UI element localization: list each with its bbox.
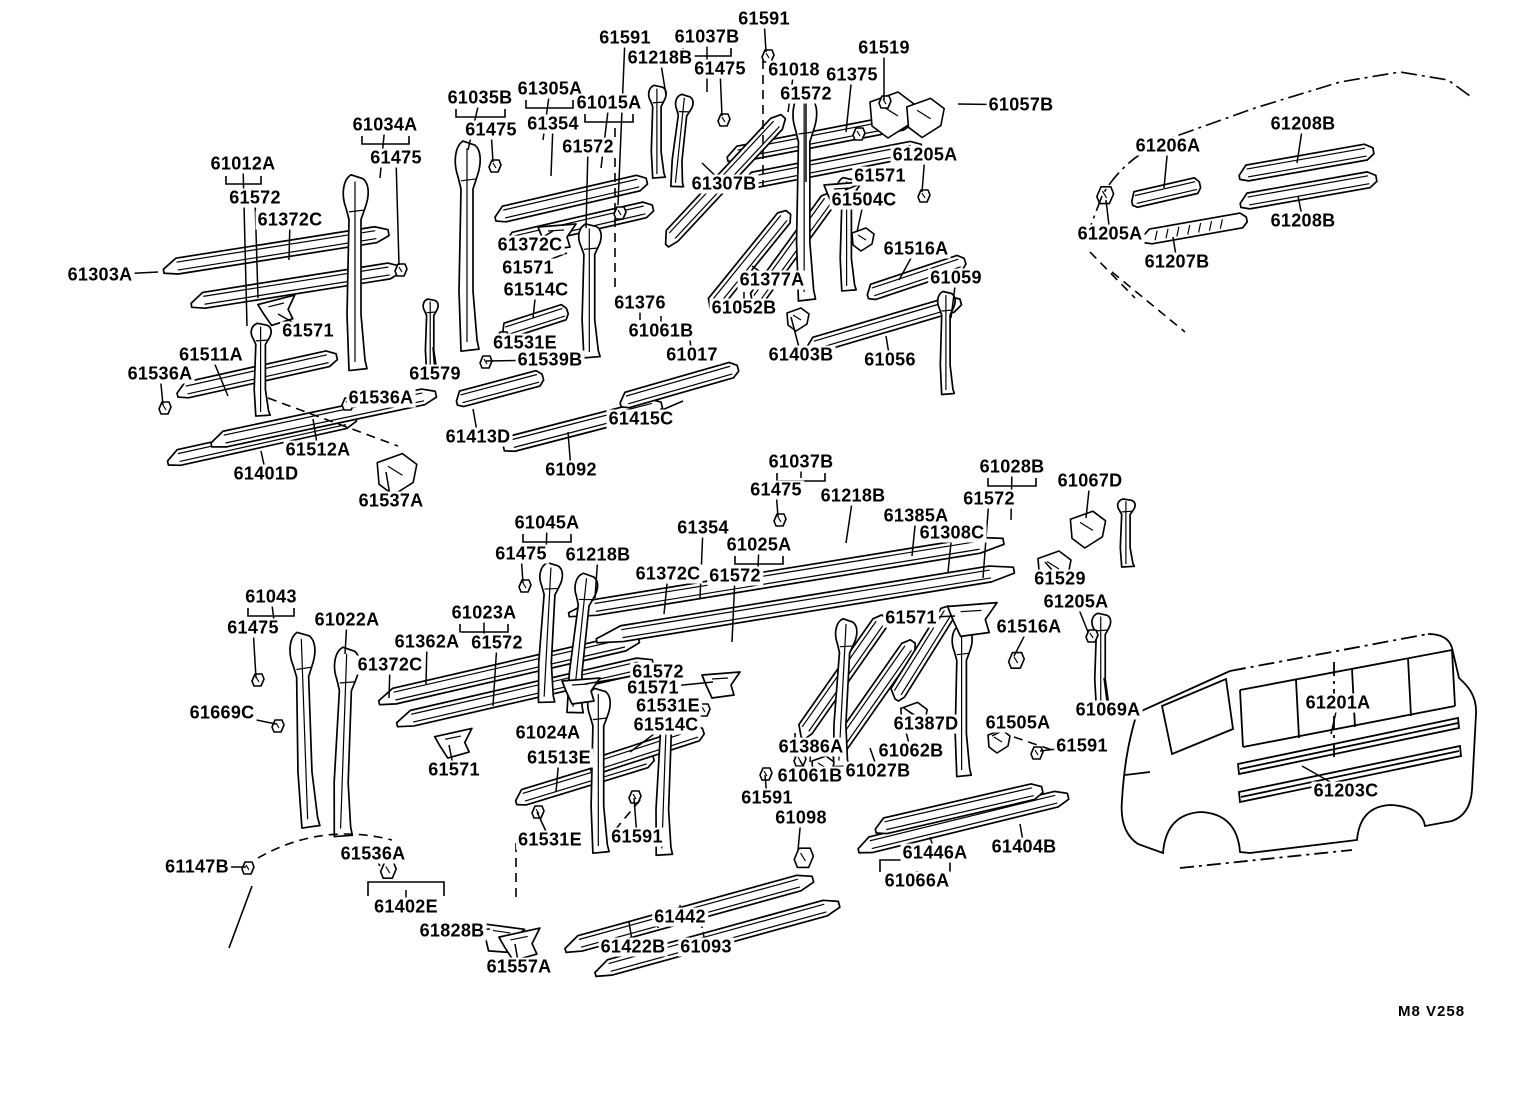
construction-line	[1090, 252, 1135, 298]
part-shape	[774, 514, 786, 526]
part-shape	[455, 141, 480, 351]
leader-line	[468, 98, 480, 150]
part-shape	[918, 190, 930, 202]
leader-line	[261, 451, 266, 474]
part-shape	[907, 98, 944, 137]
part-shape	[342, 398, 354, 410]
leader-line	[906, 732, 911, 751]
part-shape	[329, 647, 361, 837]
part-shape	[423, 299, 438, 371]
part-shape	[1038, 551, 1071, 586]
part-shape	[519, 580, 531, 592]
diagram-line-art	[0, 0, 1528, 1096]
part-shape	[381, 863, 397, 879]
leader-line	[601, 103, 609, 168]
figure-code: M8 V258	[1398, 1003, 1465, 1020]
leader-line	[857, 200, 864, 232]
leader-line	[289, 220, 290, 260]
part-shape	[787, 308, 809, 331]
part-shape	[988, 730, 1010, 753]
parts-diagram: 6159161037B6159161218B614756101861375615…	[0, 0, 1528, 1096]
leader-line	[798, 818, 801, 850]
leader-line	[1076, 602, 1088, 632]
part-shape	[242, 862, 254, 874]
leader-line	[160, 374, 163, 405]
label-bracket	[248, 608, 294, 616]
van-front-window	[1162, 679, 1233, 754]
top-left-assembly	[159, 50, 968, 495]
leader-line	[426, 642, 427, 684]
leader-line	[546, 523, 547, 558]
leader-line	[1173, 237, 1177, 262]
label-bracket	[362, 136, 409, 144]
part-shape	[489, 160, 501, 172]
leader-line	[222, 713, 276, 724]
leader-line	[776, 490, 778, 517]
leader-line	[764, 19, 766, 52]
leader-line	[958, 104, 1021, 105]
part-shape	[454, 369, 545, 408]
van-roof-rear	[1428, 634, 1452, 648]
part-shape	[667, 94, 694, 188]
leader-line	[396, 158, 399, 265]
part-shape	[812, 756, 834, 779]
leader-line	[922, 155, 925, 192]
leader-line	[543, 89, 550, 140]
leader-line	[886, 336, 890, 360]
van-front-detail	[1125, 772, 1150, 775]
van-outline	[1122, 634, 1476, 868]
leader-line	[689, 333, 692, 355]
part-shape	[649, 85, 666, 178]
part-shape	[1130, 177, 1202, 208]
leader-line	[486, 360, 550, 361]
part-shape	[1092, 613, 1111, 706]
leader-line	[473, 409, 478, 437]
leader-line	[870, 748, 878, 771]
part-shape	[1140, 212, 1248, 245]
leader-line	[491, 130, 493, 162]
leader-line	[1011, 467, 1012, 520]
label-bracket	[456, 109, 505, 117]
part-shape	[793, 95, 817, 301]
part-shape	[1070, 511, 1105, 548]
part-shape	[501, 397, 664, 454]
part-shape	[1009, 653, 1025, 669]
label-bracket	[585, 114, 633, 122]
construction-line	[1112, 272, 1185, 332]
top-right-assembly	[1097, 143, 1378, 246]
leader-line	[1014, 627, 1029, 656]
leader-line	[521, 554, 523, 583]
part-shape	[879, 96, 891, 108]
part-shape	[190, 261, 402, 310]
middle-assembly	[242, 499, 1135, 979]
leader-line	[720, 69, 722, 116]
leader-lines	[100, 19, 1346, 967]
part-shape	[209, 386, 437, 449]
van-rocker-dashed	[1180, 850, 1352, 868]
part-shape	[852, 228, 874, 251]
part-shape	[1118, 499, 1135, 567]
part-shape	[252, 674, 264, 686]
construction-line	[258, 834, 392, 858]
leader-line	[528, 253, 567, 268]
part-shape	[500, 303, 570, 339]
part-shape	[480, 356, 492, 368]
leader-line	[389, 665, 390, 698]
leader-line	[551, 124, 553, 176]
leader-line	[930, 837, 935, 853]
part-shape	[718, 114, 730, 126]
part-shape	[702, 672, 740, 698]
label-bracket	[526, 100, 573, 108]
leader-line	[846, 496, 853, 543]
van-roof-front	[1137, 671, 1230, 713]
leader-line	[253, 628, 256, 678]
leader-line	[537, 812, 550, 840]
van-window-band	[1240, 650, 1455, 747]
leader-line	[1164, 146, 1168, 188]
leader-line	[1106, 200, 1110, 234]
leader-line	[1020, 824, 1024, 847]
leader-line	[810, 747, 811, 762]
leader-line	[100, 272, 158, 275]
leader-line	[373, 854, 380, 866]
part-shape	[289, 632, 321, 828]
part-shape	[794, 848, 813, 867]
part-shape	[434, 728, 475, 759]
part-shape	[395, 264, 407, 276]
leader-line	[653, 682, 713, 688]
part-shape	[853, 128, 865, 140]
part-shape	[272, 720, 284, 732]
van-roof-dashed	[1230, 634, 1428, 671]
label-bracket	[880, 860, 950, 872]
leader-line	[548, 733, 582, 734]
part-shape	[952, 626, 972, 776]
body-outline-dashed	[1086, 72, 1470, 238]
part-shape	[1031, 747, 1043, 759]
part-shape	[159, 402, 171, 414]
leader-line	[758, 545, 759, 568]
leader-line	[380, 125, 385, 178]
van-side-rail-lower	[1239, 746, 1461, 802]
part-shape	[532, 806, 544, 818]
part-shape	[651, 695, 679, 856]
part-shape	[377, 454, 417, 495]
construction-line	[229, 886, 252, 948]
part-shape	[579, 224, 601, 358]
